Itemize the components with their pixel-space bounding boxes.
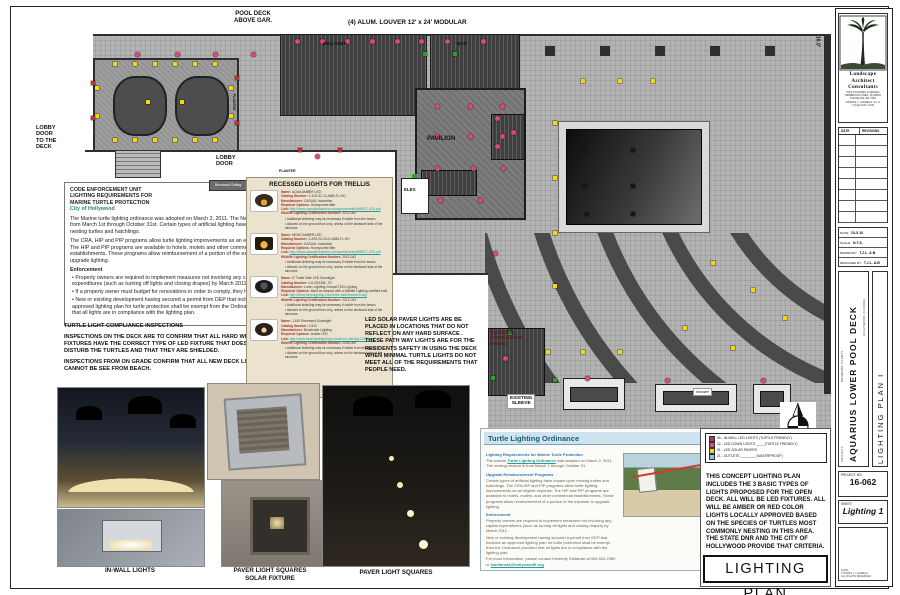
sheet-name-vertical: LIGHTING PLAN I bbox=[876, 296, 885, 464]
fixture-bullet: Allowed on the ground floor only, unless… bbox=[285, 308, 389, 316]
downlight-symbol bbox=[481, 39, 486, 44]
outlet-symbol bbox=[491, 376, 495, 380]
symbol-legend-rows: 06 - IN-WALL LED LIGHTS (TURTLE FRIENDLY… bbox=[708, 436, 824, 460]
revision-date-cell bbox=[839, 168, 856, 178]
revision-row-empty bbox=[839, 135, 887, 146]
pavilion-label: PAVILION bbox=[427, 136, 455, 143]
ordinance-p4: New or existing development having secur… bbox=[486, 535, 618, 556]
fixture-entry: Name: 6" Turtle Safe LED DownlightCatalo… bbox=[250, 276, 389, 316]
night-deck-photo bbox=[57, 387, 205, 508]
project-no-value: 16-062 bbox=[841, 477, 885, 487]
beach-sign bbox=[637, 467, 657, 493]
bbq-area-label: BBQ AREA bbox=[323, 41, 347, 46]
solar-paver-symbol bbox=[229, 86, 233, 90]
sheet-title: LIGHTING PLAN bbox=[703, 555, 828, 583]
downlight-symbol bbox=[500, 134, 505, 139]
downlight-symbol bbox=[495, 116, 500, 121]
drawn-label: DRAWN BY: bbox=[840, 251, 857, 255]
note-text: NOTE: THOMAS J. LAGRECA ALL RIGHTS RESER… bbox=[841, 569, 871, 578]
solar-paver-symbol bbox=[618, 79, 622, 83]
fixture-line: Wildlife Lighting Certification Number: … bbox=[281, 298, 389, 302]
project-label-vertical: PROJECT: bbox=[841, 392, 844, 462]
fixture-bullet: Additional shielding may be necessary if… bbox=[285, 217, 389, 221]
revision-row-empty bbox=[839, 168, 887, 179]
county-vertical: BROWARD COUNTY bbox=[841, 302, 844, 382]
fixture-field-label: Wildlife Lighting Certification Number: bbox=[281, 255, 342, 259]
fixture-bullet: Additional shielding may be necessary if… bbox=[285, 260, 389, 264]
ordinance-p5: For more information, please contact Kim… bbox=[486, 556, 618, 566]
revision-date-cell bbox=[839, 135, 856, 145]
solar-paver-symbol bbox=[213, 62, 217, 66]
revision-row-empty bbox=[839, 179, 887, 190]
fixture-line: Wildlife Lighting Certification Number: … bbox=[281, 211, 389, 215]
night-walkway-photo bbox=[322, 385, 470, 567]
fixture-bullet: Additional shielding may be necessary if… bbox=[285, 303, 389, 307]
solar-paver-symbol bbox=[193, 138, 197, 142]
fixture-bullet: Allowed on the ground floor only, unless… bbox=[285, 222, 389, 230]
planter-label-2: PLANTER bbox=[279, 170, 296, 174]
paver-square-closeup-photo bbox=[221, 480, 333, 567]
downlight-symbol bbox=[135, 52, 140, 57]
revisions-col-revisions: REVISIONS bbox=[860, 128, 881, 134]
symbol-legend-text: 91 - LED SOLAR PAVERS bbox=[717, 448, 757, 453]
designed-label: DESIGNED BY: bbox=[840, 261, 862, 265]
in-wall-light-symbol bbox=[338, 148, 342, 152]
downlight-symbol bbox=[478, 198, 483, 203]
solar-paver-symbol bbox=[173, 62, 177, 66]
symbol-legend: 06 - IN-WALL LED LIGHTS (TURTLE FRIENDLY… bbox=[705, 433, 827, 463]
in-wall-light-symbol bbox=[91, 81, 95, 85]
solar-paver-symbol bbox=[213, 138, 217, 142]
fixture-field-value: 2008-009 bbox=[342, 341, 356, 345]
concept-para-1: THIS CONCEPT LIGHTING PLAN INCLUDES THE … bbox=[706, 473, 827, 551]
project-name-vertical: AQUARIUS LOWER POOL DECK bbox=[848, 278, 858, 462]
solar-paver-symbol bbox=[731, 346, 735, 350]
fixture-line: Wildlife Lighting Certification Number: … bbox=[281, 255, 389, 259]
solar-paver-symbol bbox=[180, 100, 184, 104]
pool-light-symbol bbox=[631, 184, 635, 188]
outlet-symbol bbox=[453, 52, 457, 56]
pool-light-symbol bbox=[583, 148, 587, 152]
in-wall-light-symbol bbox=[298, 148, 302, 152]
fixture-photo-icon bbox=[250, 233, 278, 255]
downlight-symbol bbox=[445, 39, 450, 44]
revision-date-cell bbox=[839, 212, 856, 222]
caption-paver-solar: PAVER LIGHT SQUARES SOLAR FIXTURE bbox=[214, 567, 326, 583]
city-vertical: HOLLYWOOD, FLORIDA bbox=[863, 276, 866, 336]
pool-light-symbol bbox=[585, 212, 589, 216]
fixture-entry: Name: NEMO AMBER LEDCatalog Number: 2-20… bbox=[250, 233, 389, 273]
scale-label: SCALE: bbox=[840, 241, 851, 245]
solar-paver-symbol bbox=[683, 326, 687, 330]
solar-paver-symbol bbox=[133, 138, 137, 142]
downlight-symbol bbox=[468, 104, 473, 109]
lighting-plan-sheet: BBQ AREA BAR PAVILION ELEV. PLANTER PLAN… bbox=[0, 0, 900, 595]
revisions-col-date: DATE bbox=[839, 128, 860, 134]
outlet-symbol bbox=[423, 52, 427, 56]
downlight-symbol bbox=[495, 144, 500, 149]
downlight-symbol bbox=[585, 376, 590, 381]
led-solar-paver-note: LED SOLAR PAVER LIGHTS ARE BE PLACED IN … bbox=[365, 317, 482, 374]
revisions-table: DATE REVISIONS bbox=[838, 127, 888, 223]
revisions-rows bbox=[839, 135, 887, 223]
sheet-name-box: LIGHTING PLAN I bbox=[872, 271, 888, 467]
solar-paver-symbol bbox=[146, 100, 150, 104]
ordinance-p1: The marine Turtle Lighting Ordinance was… bbox=[486, 458, 618, 468]
solar-paver-symbol bbox=[95, 114, 99, 118]
solar-paver-symbol bbox=[553, 176, 557, 180]
fixture-text: Name: NEMO AMBER LEDCatalog Number: 2-20… bbox=[281, 233, 389, 273]
downlight-symbol bbox=[500, 104, 505, 109]
solar-paver-symbol bbox=[553, 284, 557, 288]
firm-detail-5: TJL@LACFL.COM bbox=[839, 104, 887, 107]
downlight-symbol bbox=[435, 166, 440, 171]
in-wall-light-symbol bbox=[235, 76, 239, 80]
solar-paver-symbol bbox=[553, 121, 557, 125]
downlight-symbol bbox=[395, 39, 400, 44]
beach-sign-photo bbox=[623, 453, 705, 517]
revision-row-empty bbox=[839, 190, 887, 201]
pool-light-symbol bbox=[583, 184, 587, 188]
legend-title: RECESSED LIGHTS FOR TRELLIS bbox=[250, 181, 389, 188]
revision-date-cell bbox=[839, 190, 856, 200]
downlight-symbol bbox=[511, 130, 516, 135]
fixture-field-label: Wildlife Lighting Certification Number: bbox=[281, 298, 342, 302]
fixture-field-value: 2012-042 bbox=[342, 211, 356, 215]
fixture-entry: Name: AQUA AMBER LEDCatalog Number: 2-11… bbox=[250, 190, 389, 230]
revision-row-empty bbox=[839, 212, 887, 223]
downlight-symbol bbox=[213, 52, 218, 57]
symbol-legend-row: 21 - OUTLETS ________ (WATERPROOF) bbox=[708, 454, 824, 460]
fixture-text: Name: AQUA AMBER LEDCatalog Number: 2-11… bbox=[281, 190, 389, 230]
downlight-symbol bbox=[501, 166, 506, 171]
solar-paver-symbol bbox=[95, 86, 99, 90]
firm-box: Landscape Architect Consultants SITE PLA… bbox=[838, 13, 888, 123]
revision-row-empty bbox=[839, 157, 887, 168]
date-value: 10-5-16 bbox=[851, 231, 863, 235]
downlight-symbol bbox=[370, 39, 375, 44]
downlight-symbol bbox=[295, 39, 300, 44]
symbol-legend-text: 06 - IN-WALL LED LIGHTS (TURTLE FRIENDLY… bbox=[717, 436, 792, 441]
solar-paver-symbol bbox=[651, 79, 655, 83]
solar-paver-symbol bbox=[553, 231, 557, 235]
drawn-row: DRAWN BY:T.J.L. A.B bbox=[839, 248, 887, 258]
lobby-door-label: LOBBY DOOR bbox=[216, 155, 236, 168]
downlight-symbol bbox=[471, 166, 476, 171]
title-block: Landscape Architect Consultants SITE PLA… bbox=[835, 8, 893, 587]
ordinance-p2: Certain types of artificial lighting hav… bbox=[486, 478, 618, 509]
solar-paver-symbol bbox=[751, 288, 755, 292]
revisions-header: DATE REVISIONS bbox=[839, 128, 887, 135]
palm-tree-logo-icon bbox=[839, 15, 887, 71]
date-row: DATE:10-5-16 bbox=[839, 228, 887, 238]
solar-paver-symbol bbox=[581, 79, 585, 83]
fixture-text: Name: 6" Turtle Safe LED DownlightCatalo… bbox=[281, 276, 389, 316]
sheet-value: Lighting 1 bbox=[841, 506, 885, 516]
revision-date-cell bbox=[839, 157, 856, 167]
designed-row: DESIGNED BY:T.J.L. A.B bbox=[839, 258, 887, 267]
revision-date-cell bbox=[839, 179, 856, 189]
date-label: DATE: bbox=[840, 231, 849, 235]
shower-label: shower bbox=[693, 388, 712, 396]
ordinance-title: Turtle Lighting Ordinance bbox=[484, 432, 704, 445]
symbol-swatch-icon bbox=[709, 454, 715, 460]
recessed-ceiling-tab: Recessed Ceiling bbox=[209, 180, 247, 191]
solar-paver-symbol bbox=[229, 114, 233, 118]
downlight-symbol bbox=[493, 251, 498, 256]
project-no-box: PROJECT NO: 16-062 bbox=[838, 471, 888, 497]
existing-sleeve-label: EXISTING SLEEVE bbox=[507, 394, 535, 409]
solar-paver-symbol bbox=[113, 138, 117, 142]
symbol-legend-text: 21 - OUTLETS ________ (WATERPROOF) bbox=[717, 454, 783, 459]
downlight-symbol bbox=[438, 198, 443, 203]
designed-value: T.J.L. A.B bbox=[864, 261, 880, 265]
project-name-box: AQUARIUS LOWER POOL DECK PROJECT: BROWAR… bbox=[838, 271, 869, 467]
scale-row: SCALE:N.T.S. bbox=[839, 238, 887, 248]
ordinance-h2: Upgrade Reimbursement Programs bbox=[486, 472, 618, 477]
pool-light-symbol bbox=[631, 212, 635, 216]
fixture-field-label: Wildlife Lighting Certification Number: bbox=[281, 341, 342, 345]
concept-panel: 06 - IN-WALL LED LIGHTS (TURTLE FRIENDLY… bbox=[700, 428, 831, 587]
fixture-photo-icon bbox=[250, 276, 278, 298]
drawn-value: T.J.L. A.B bbox=[859, 251, 875, 255]
solar-paver-symbol bbox=[173, 138, 177, 142]
caption-paver-squares: PAVER LIGHT SQUARES bbox=[330, 569, 462, 577]
solar-paver-symbol bbox=[581, 350, 585, 354]
note-box: NOTE: THOMAS J. LAGRECA ALL RIGHTS RESER… bbox=[838, 527, 888, 581]
pool-light-symbol bbox=[631, 148, 635, 152]
revision-date-cell bbox=[839, 146, 856, 156]
solar-paver-symbol bbox=[133, 62, 137, 66]
solar-paver-symbol bbox=[711, 261, 715, 265]
revision-row-empty bbox=[839, 146, 887, 157]
solar-paver-symbol bbox=[546, 350, 550, 354]
fixture-field-value: 2012-042 bbox=[342, 255, 356, 259]
downlight-symbol bbox=[315, 154, 320, 159]
lobby-door-to-deck-label: LOBBY DOOR TO THE DECK bbox=[36, 125, 56, 150]
alum-louver-label: (4) ALUM. LOUVER 12' x 24' MODULAR bbox=[348, 19, 467, 26]
solar-paver-symbol bbox=[193, 62, 197, 66]
solar-paver-symbol bbox=[783, 316, 787, 320]
in-wall-fixture-photo bbox=[57, 509, 205, 567]
outlet-symbol bbox=[553, 378, 557, 382]
downlight-symbol bbox=[419, 39, 424, 44]
downlight-symbol bbox=[435, 104, 440, 109]
revision-row-empty bbox=[839, 201, 887, 212]
ordinance-body: Lighting Requirements for Marine Turtle … bbox=[486, 449, 618, 567]
planter-label-1: PLANTER bbox=[231, 94, 235, 111]
in-wall-light-symbol bbox=[91, 116, 95, 120]
solar-paver-symbol bbox=[153, 62, 157, 66]
ordinance-h3: Enforcement bbox=[486, 512, 618, 517]
in-wall-light-symbol bbox=[235, 121, 239, 125]
symbol-legend-text: 32 - LED DOWN LIGHTS ____ (TURTLE FRIEND… bbox=[717, 442, 798, 447]
outdoor-dining-label: OUTDOOR RESTAURANT DINING bbox=[490, 331, 523, 347]
turtle-ordinance-box: Turtle Lighting Ordinance Lighting Requi… bbox=[480, 428, 708, 571]
solar-paver-symbol bbox=[618, 350, 622, 354]
ordinance-p3: Property owners are required to implemen… bbox=[486, 518, 618, 534]
solar-paver-symbol bbox=[153, 138, 157, 142]
ordinance-h1: Lighting Requirements for Marine Turtle … bbox=[486, 452, 618, 457]
caption-in-wall-lights: IN-WALL LIGHTS bbox=[64, 567, 196, 575]
bar-label: BAR bbox=[457, 41, 467, 46]
downlight-symbol bbox=[175, 52, 180, 57]
sheet-box: SHEET: Lighting 1 bbox=[838, 500, 888, 524]
solar-paver-symbol bbox=[113, 62, 117, 66]
fixture-photo-icon bbox=[250, 319, 278, 341]
revision-date-cell bbox=[839, 201, 856, 211]
info-box: DATE:10-5-16 SCALE:N.T.S. DRAWN BY:T.J.L… bbox=[838, 227, 888, 267]
fixture-bullet: Allowed on the ground floor only, unless… bbox=[285, 265, 389, 273]
fixture-field-value: 2012-043 bbox=[342, 298, 356, 302]
ordinance-p5b: . bbox=[544, 562, 545, 567]
fixture-field-label: Wildlife Lighting Certification Number: bbox=[281, 211, 342, 215]
downlight-symbol bbox=[665, 378, 670, 383]
fixture-photo-icon bbox=[250, 190, 278, 212]
ordinance-email-link[interactable]: kstefanski@hollywoodfl.org bbox=[491, 562, 544, 567]
solar-paver-photo bbox=[207, 383, 320, 480]
downlight-symbol bbox=[468, 134, 473, 139]
downlight-symbol bbox=[761, 378, 766, 383]
elev-label: ELEV. bbox=[404, 188, 416, 193]
downlight-symbol bbox=[503, 356, 508, 361]
downlight-symbol bbox=[251, 52, 256, 57]
pool-deck-above-gar-label: POOL DECK ABOVE GAR. bbox=[203, 11, 303, 24]
scale-value: N.T.S. bbox=[853, 241, 863, 245]
dimension-16ft: 16.0' bbox=[814, 36, 820, 47]
